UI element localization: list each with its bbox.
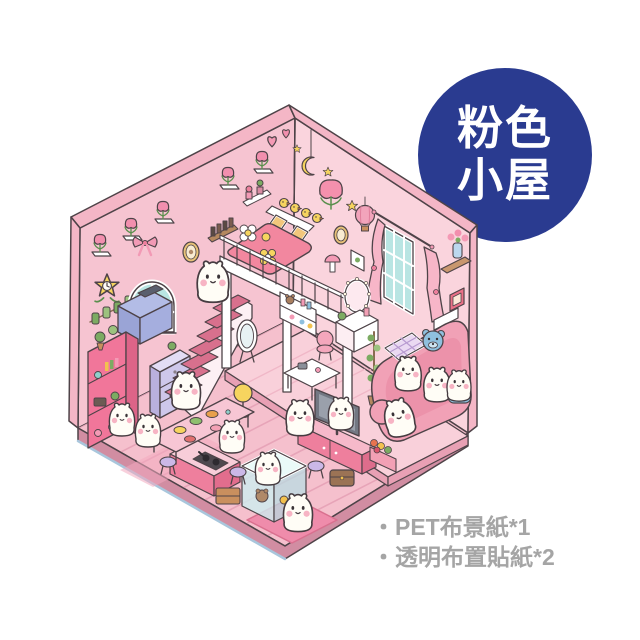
storage-chest — [330, 470, 354, 486]
pup-character — [424, 367, 451, 401]
curtain-tieback — [372, 266, 377, 271]
wood-crate — [216, 488, 240, 504]
duvet-dot — [262, 233, 270, 241]
note-line-2: ・透明布置貼紙*2 — [372, 542, 555, 572]
wall-edge-left — [69, 217, 80, 428]
curtain-tieback — [434, 290, 439, 295]
blue-bear — [423, 330, 445, 352]
pup-character — [283, 494, 312, 532]
game-console — [298, 363, 307, 369]
note-line-1: ・PET布景紙*1 — [372, 512, 555, 542]
pup-character — [447, 370, 471, 401]
pup-character — [286, 400, 314, 436]
duvet-flower-white — [240, 225, 256, 241]
oval-frame — [334, 226, 348, 244]
pup-character — [395, 356, 422, 390]
pup-character — [171, 372, 200, 410]
pup-character — [197, 261, 229, 302]
pup-character — [109, 403, 134, 436]
pup-character — [328, 397, 353, 430]
package-contents: ・PET布景紙*1 ・透明布置貼紙*2 — [372, 512, 555, 572]
mini-doll — [168, 342, 176, 350]
pup-character — [135, 414, 160, 447]
product-image: 粉色 小屋 — [0, 0, 640, 640]
oval-frame — [183, 242, 199, 262]
pup-character — [255, 452, 280, 485]
pup-character — [219, 420, 244, 453]
